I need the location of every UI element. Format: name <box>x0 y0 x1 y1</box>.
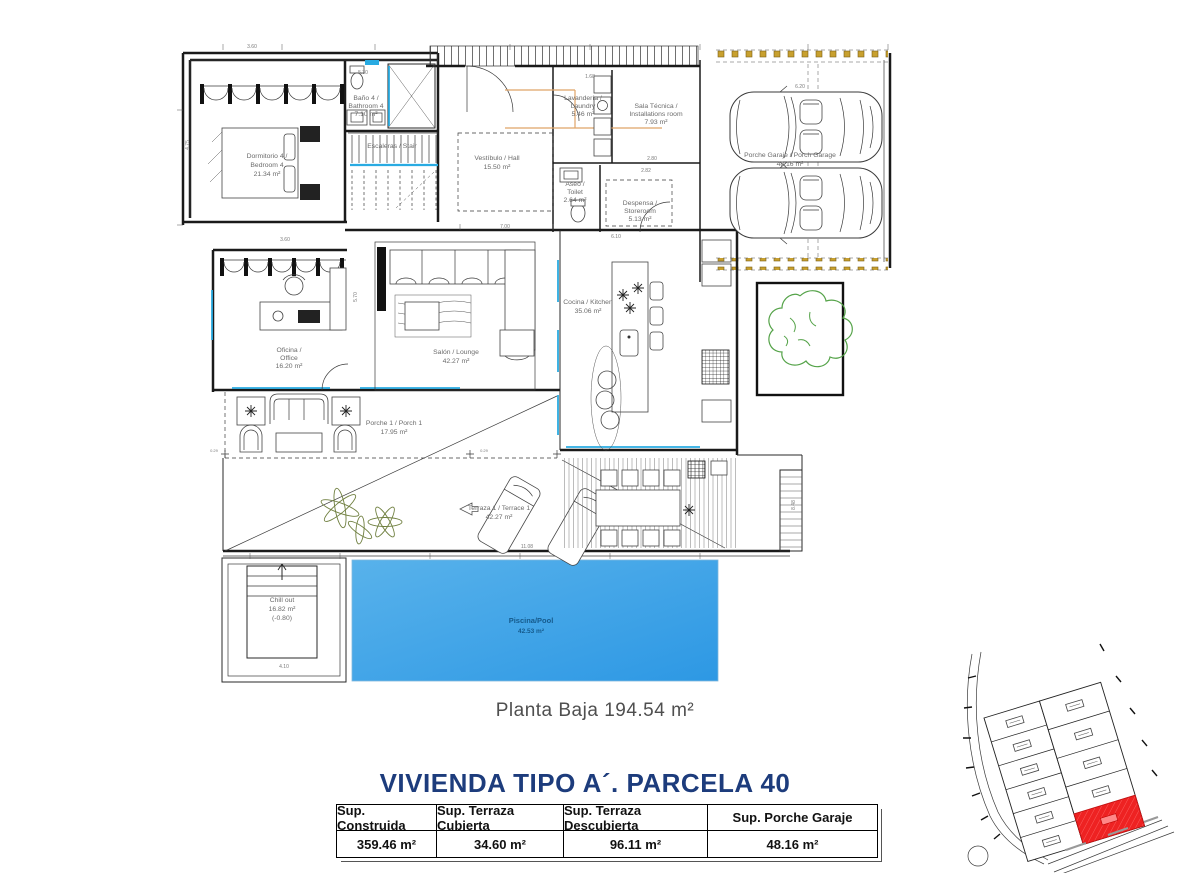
project-heading: VIVIENDA TIPO A´. PARCELA 40 <box>285 768 885 799</box>
svg-text:5.13 m²: 5.13 m² <box>628 216 652 223</box>
plan-title: Planta Baja 194.54 m² <box>395 700 795 722</box>
curtain-icon <box>224 262 340 272</box>
floor-plan-sheet: Piscina/Pool 42.53 m² <box>0 0 1192 873</box>
svg-text:42.27 m²: 42.27 m² <box>443 358 471 365</box>
svg-text:8.48: 8.48 <box>791 500 797 510</box>
appliance-icon <box>702 350 729 384</box>
floor-plan-svg: Piscina/Pool 42.53 m² <box>0 0 1192 873</box>
table-value: 96.11 m² <box>564 831 708 857</box>
room-label: Salón / Lounge <box>433 349 479 356</box>
room-label: Aseo / <box>565 181 584 188</box>
svg-text:4.75: 4.75 <box>185 140 191 150</box>
plant-icon <box>319 487 402 544</box>
svg-text:Bedroom 4: Bedroom 4 <box>250 162 283 169</box>
room-label: Baño 4 / <box>353 95 378 102</box>
room-label: Despensa / <box>623 200 657 207</box>
svg-text:2.64 m²: 2.64 m² <box>563 197 587 204</box>
door-arc <box>467 66 513 112</box>
svg-text:16.82 m²: 16.82 m² <box>269 606 297 613</box>
sofa-icon <box>270 394 328 424</box>
room-label: Porche 1 / Porch 1 <box>366 420 423 427</box>
room-label: Escaleras / Stair <box>367 143 417 150</box>
svg-text:Storeroom: Storeroom <box>624 208 656 215</box>
bedroom-furniture <box>200 84 344 200</box>
hall-drawing <box>458 66 662 211</box>
svg-text:35.06 m²: 35.06 m² <box>575 308 603 315</box>
room-label: Oficina / <box>277 347 302 354</box>
area-table-wrap: Sup. Construida Sup. Terraza Cubierta Su… <box>336 804 878 858</box>
svg-text:0.29: 0.29 <box>210 448 219 453</box>
toilet-icon <box>571 204 585 222</box>
svg-text:6.20: 6.20 <box>795 84 805 90</box>
planter-tree <box>757 283 852 395</box>
room-label: Sala Técnica / <box>635 103 678 110</box>
svg-text:2.82: 2.82 <box>641 168 651 174</box>
laptop-icon <box>298 310 320 323</box>
chair-icon <box>285 277 303 295</box>
table-value: 48.16 m² <box>708 831 877 857</box>
tv-icon <box>377 247 386 311</box>
deck <box>561 458 802 551</box>
armchair-icon <box>334 425 356 452</box>
parcels <box>984 682 1145 861</box>
coffee-table-icon <box>405 302 439 330</box>
pool: Piscina/Pool 42.53 m² <box>352 560 718 681</box>
svg-text:Toilet: Toilet <box>567 189 583 196</box>
svg-text:Laundry: Laundry <box>571 103 596 110</box>
svg-text:48.16 m²: 48.16 m² <box>777 161 805 168</box>
site-plan <box>963 644 1174 873</box>
armchair-icon <box>240 425 262 452</box>
pool-area: 42.53 m² <box>518 628 545 635</box>
dim-label: 3.60 <box>247 44 257 50</box>
svg-text:4.10: 4.10 <box>279 664 289 670</box>
svg-text:15.50 m²: 15.50 m² <box>484 164 512 171</box>
roundabout-icon <box>968 846 988 866</box>
svg-text:7.10 m²: 7.10 m² <box>354 111 378 118</box>
svg-text:Bathroom 4: Bathroom 4 <box>348 103 383 110</box>
kitchen-furniture <box>591 240 731 450</box>
bbq-icon <box>688 461 705 478</box>
room-label: Porche Garaje / Porch Garage <box>744 152 836 159</box>
svg-text:3.60: 3.60 <box>280 237 290 243</box>
room-label: Chill out <box>270 597 295 604</box>
svg-text:17.95 m²: 17.95 m² <box>381 429 409 436</box>
svg-text:5.30: 5.30 <box>358 70 368 76</box>
table-header: Sup. Terraza Descubierta <box>564 805 708 831</box>
svg-text:5.46 m²: 5.46 m² <box>571 111 595 118</box>
lounge-furniture <box>375 242 535 390</box>
washer-icon <box>594 76 611 93</box>
wardrobe-icon <box>204 88 340 100</box>
room-label: Vestíbulo / Hall <box>474 155 520 162</box>
pool-label: Piscina/Pool <box>509 616 554 625</box>
table-value: 359.46 m² <box>337 831 437 857</box>
svg-text:42.27 m²: 42.27 m² <box>486 514 514 521</box>
garage-cars <box>730 86 882 244</box>
svg-text:11.08: 11.08 <box>521 544 533 550</box>
table-header: Sup. Construida <box>337 805 437 831</box>
svg-text:2.80: 2.80 <box>647 156 657 162</box>
table-header: Sup. Terraza Cubierta <box>437 805 564 831</box>
office-furniture <box>220 258 348 390</box>
svg-text:1.68: 1.68 <box>585 74 595 80</box>
svg-text:21.34 m²: 21.34 m² <box>254 171 282 178</box>
svg-text:0.29: 0.29 <box>480 448 489 453</box>
porch-furniture <box>237 394 360 452</box>
room-label: Terraza 1 / Terrace 1 <box>468 505 530 512</box>
svg-text:(-0.80): (-0.80) <box>272 615 292 622</box>
svg-text:16.20 m²: 16.20 m² <box>276 363 304 370</box>
sink-icon <box>560 168 582 182</box>
table-header: Sup. Porche Garaje <box>708 805 877 831</box>
area-table: Sup. Construida Sup. Terraza Cubierta Su… <box>336 804 878 858</box>
svg-text:7.00: 7.00 <box>500 224 510 230</box>
svg-text:7.93 m²: 7.93 m² <box>644 119 668 126</box>
room-label: Dormitorio 4 / <box>247 153 288 160</box>
armchair-icon <box>500 330 534 356</box>
svg-text:6.10: 6.10 <box>611 234 621 240</box>
svg-text:Office: Office <box>280 355 298 362</box>
coffee-table-icon <box>276 433 322 452</box>
svg-text:5.70: 5.70 <box>353 292 359 302</box>
dining-table-icon <box>596 490 680 526</box>
svg-text:Installations room: Installations room <box>629 111 683 118</box>
room-label: Cocina / Kitchen <box>563 299 613 306</box>
table-value: 34.60 m² <box>437 831 564 857</box>
room-label: Lavandería / <box>564 95 602 102</box>
